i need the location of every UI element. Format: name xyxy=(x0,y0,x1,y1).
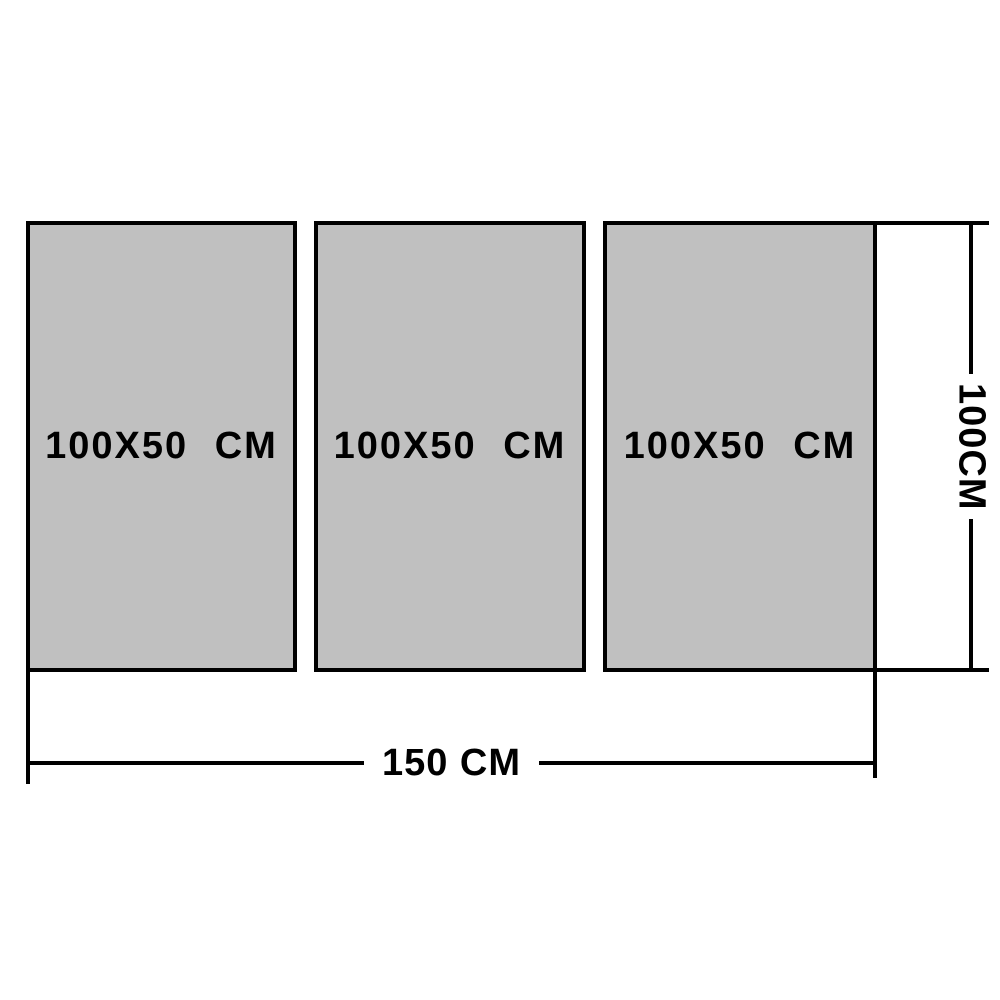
panel-2: 100X50 CM xyxy=(314,221,586,672)
width-dimension: 150 CM xyxy=(26,742,877,784)
width-dimension-line-right xyxy=(539,761,877,765)
width-dimension-label: 150 CM xyxy=(364,742,539,785)
panel-1-size-label: 100X50 CM xyxy=(45,425,278,468)
panel-2-size-label: 100X50 CM xyxy=(334,425,567,468)
panel-size-diagram: 100X50 CM 100X50 CM 100X50 CM 100CM 150 … xyxy=(0,0,1000,1000)
panel-3-size-label: 100X50 CM xyxy=(624,425,857,468)
panel-1: 100X50 CM xyxy=(26,221,297,672)
height-dimension-line-top xyxy=(969,221,973,374)
height-dimension: 100CM xyxy=(948,221,994,672)
height-dimension-label: 100CM xyxy=(950,374,993,520)
height-dimension-line-bottom xyxy=(969,519,973,672)
panel-3: 100X50 CM xyxy=(603,221,877,672)
width-dimension-line-left xyxy=(26,761,364,765)
